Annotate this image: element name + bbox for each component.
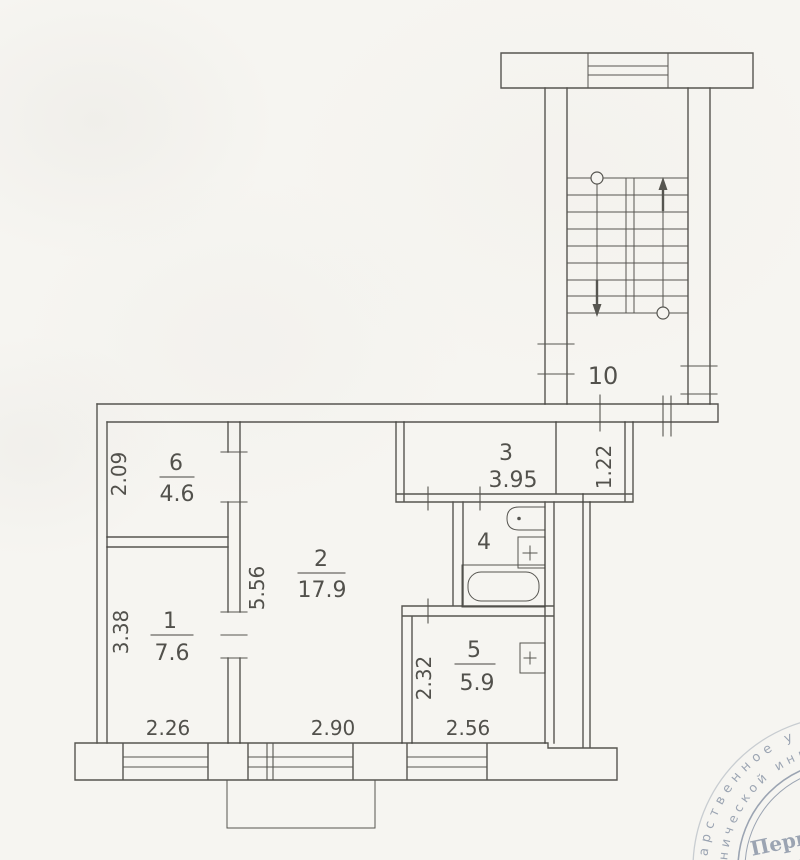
door-jamb-ticks-right <box>428 395 671 623</box>
room-4-number: 4 <box>477 530 491 555</box>
stairwell-opening-ticks <box>538 344 717 394</box>
stamp: ударственное у хнической инве Перв фил <box>693 716 800 860</box>
bathtub-icon <box>462 565 545 607</box>
room-2-number: 2 <box>314 547 328 572</box>
stair-start-circle-left <box>591 172 603 184</box>
right-wall <box>583 494 590 747</box>
room-1-number: 1 <box>163 609 177 634</box>
dim-room1-width: 2.26 <box>146 716 191 740</box>
room-3-number: 3 <box>499 441 513 466</box>
stove-icon <box>520 643 545 673</box>
stair-arrow-down-icon <box>593 280 602 317</box>
stamp-center-text: Перв фил <box>748 825 800 860</box>
dim-room1-depth: 3.38 <box>109 610 133 655</box>
stair-arrow-up-icon <box>659 177 668 211</box>
room-2-area: 17.9 <box>298 578 347 603</box>
dim-room6-depth: 2.09 <box>107 452 131 497</box>
room-6-area: 4.6 <box>160 482 195 507</box>
dim-kitchen-width: 2.56 <box>446 716 491 740</box>
balcony-door-ticks <box>267 743 273 780</box>
door-jamb-ticks-left <box>221 452 247 658</box>
room-1-area: 7.6 <box>155 641 190 666</box>
stair-top-wall <box>501 53 753 88</box>
floor-plan-svg: 6 4.6 1 7.6 2 17.9 3 3.95 4 5 5.9 10 2.0… <box>0 0 800 860</box>
sink-icon <box>507 507 545 530</box>
room-5-area: 5.9 <box>460 671 495 696</box>
window-room2-icon <box>248 757 353 767</box>
dim-vestibule-width: 1.22 <box>592 445 616 490</box>
bottom-wall <box>75 743 617 780</box>
stair-start-circle-right <box>657 307 669 319</box>
room-10-number: 10 <box>588 362 619 390</box>
room-3-area: 3.95 <box>489 468 538 493</box>
top-wall <box>97 404 718 422</box>
partition-room6-room1 <box>107 537 228 547</box>
stair-window-icon <box>588 53 668 88</box>
toilet-icon <box>518 537 545 568</box>
left-wall <box>97 404 107 743</box>
window-room1-icon <box>123 757 208 767</box>
window-kitchen-icon <box>407 757 487 767</box>
scanned-floor-plan-page: 6 4.6 1 7.6 2 17.9 3 3.95 4 5 5.9 10 2.0… <box>0 0 800 860</box>
dim-room2-width: 2.90 <box>311 716 356 740</box>
room-6-number: 6 <box>169 451 183 476</box>
partition-rooms-1-6 <box>228 422 240 743</box>
stair-treads <box>567 178 688 313</box>
balcony <box>227 780 375 828</box>
interior-partitions <box>107 395 671 743</box>
dim-room2-depth: 5.56 <box>245 566 269 611</box>
staircase-block <box>501 53 753 404</box>
room-labels: 6 4.6 1 7.6 2 17.9 3 3.95 4 5 5.9 10 <box>151 362 618 696</box>
dim-kitchen-depth: 2.32 <box>412 656 436 701</box>
room-5-number: 5 <box>467 638 481 663</box>
